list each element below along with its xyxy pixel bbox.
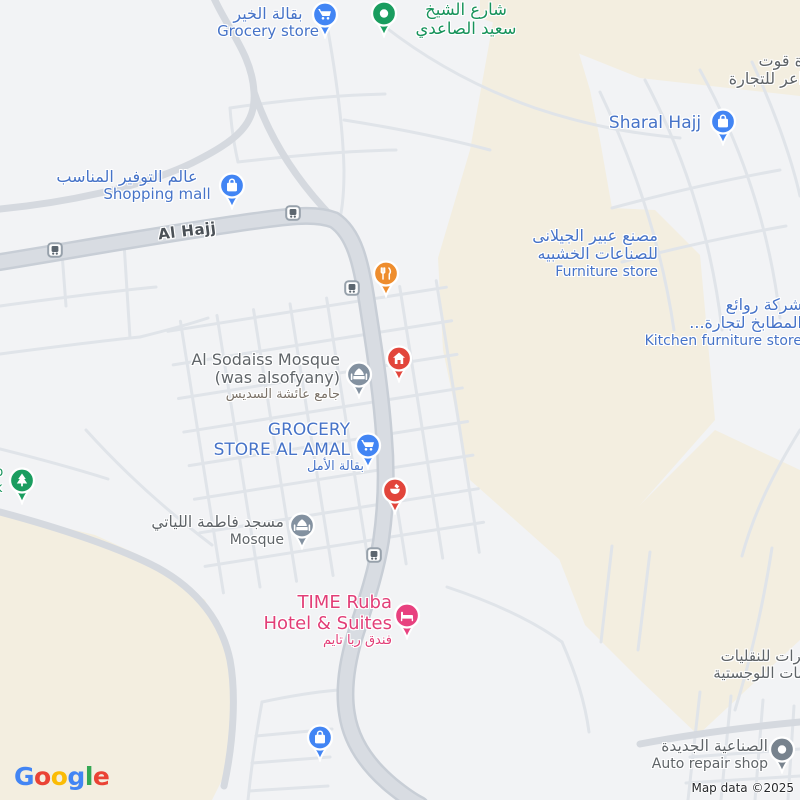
auto-repair-marker[interactable] (767, 736, 797, 774)
poi-label-park-fragment[interactable]: p k (0, 465, 3, 498)
poi-name-en2: STORE AL AMAL (210, 441, 350, 461)
poi-label-auto-repair[interactable]: الصناعية الجديدة Auto repair shop (608, 738, 768, 772)
poi-name-en: Auto repair shop (608, 756, 768, 772)
poi-name-en2: Hotel & Suites (252, 614, 392, 635)
poi-name-fragment: اعر للتجارة (729, 70, 800, 88)
map-viewport[interactable]: بقالة الخير Grocery store شارع الشيخ سعي… (0, 0, 800, 800)
poi-name-en: Sharal Hajj (596, 114, 714, 134)
hotel-marker[interactable] (392, 602, 422, 640)
poi-label-fatima-mosque[interactable]: مسجد فاطمة اللياتي Mosque (124, 514, 284, 548)
poi-name-en2: (was alsofyany) (180, 369, 340, 387)
label-fragment: p (0, 465, 3, 481)
poi-name-en: Furniture store (500, 264, 658, 280)
street-label-sheikh-saeed[interactable]: شارع الشيخ سعيد الصاعدي (398, 1, 534, 39)
bus-stop-icon[interactable] (366, 547, 382, 563)
home-marker[interactable] (384, 345, 414, 383)
bus-stop-icon[interactable] (47, 242, 63, 258)
restaurant-marker[interactable] (371, 260, 401, 298)
poi-name-en: Mosque (124, 532, 284, 548)
logo-letter: G (14, 762, 34, 791)
poi-name-fragment: مات اللوجستية (713, 665, 800, 682)
poi-name-en: Shopping mall (36, 186, 218, 203)
shopping-bag-marker[interactable] (217, 172, 247, 210)
poi-label-grocery-amal[interactable]: GROCERY STORE AL AMAL بقالة الأمل (210, 421, 350, 475)
poi-name-ar: جامع عائشة السديس (180, 388, 340, 403)
poi-label-shopping-mall[interactable]: عالم التوفير المناسب Shopping mall (36, 168, 218, 204)
poi-label-sharal-hajj[interactable]: Sharal Hajj (596, 114, 714, 134)
mosque-marker[interactable] (287, 512, 317, 550)
poi-name-en1: Al Sodaiss Mosque (180, 351, 340, 369)
poi-name-ar2: للصناعات الخشبيه (500, 245, 658, 263)
poi-label-qut-trading[interactable]: ة قوت اعر للتجارة (729, 52, 800, 89)
poi-label-transport-co[interactable]: يرات للنقليات مات اللوجستية (713, 648, 800, 683)
street-name-line1: شارع الشيخ (398, 1, 534, 20)
poi-name-ar: مسجد فاطمة اللياتي (124, 514, 284, 532)
logo-letter: o (34, 762, 51, 791)
logo-letter: g (67, 762, 84, 791)
mosque-marker[interactable] (344, 361, 374, 399)
pharmacy-marker[interactable] (380, 477, 410, 515)
poi-name-ar1: مصنع عبير الجيلانى (500, 227, 658, 245)
park-tree-marker[interactable] (7, 467, 37, 505)
bus-stop-icon[interactable] (285, 205, 301, 221)
map-attribution: Map data ©2025 (691, 781, 794, 795)
poi-label-furniture-store[interactable]: مصنع عبير الجيلانى للصناعات الخشبيه Furn… (500, 227, 658, 280)
poi-name-ar: بقالة الأمل (210, 460, 364, 475)
poi-label-hotel[interactable]: TIME Ruba Hotel & Suites فندق ربا تايم (252, 593, 392, 649)
logo-letter: l (85, 762, 93, 791)
poi-name-ar: الصناعية الجديدة (608, 738, 768, 756)
poi-label-kitchen-store[interactable]: شركة روائع المطابخ لتجارة... Kitchen fur… (645, 296, 800, 349)
google-logo[interactable]: Google (14, 762, 109, 791)
poi-name-fragment: يرات للنقليات (713, 648, 800, 665)
poi-label-grocery-khair[interactable]: بقالة الخير Grocery store (190, 5, 346, 41)
poi-name-en: Grocery store (190, 23, 346, 40)
street-point-marker[interactable] (369, 0, 399, 38)
poi-name-ar2: المطابخ لتجارة... (645, 314, 800, 332)
logo-letter: o (51, 762, 68, 791)
poi-name-en: Kitchen furniture store (645, 333, 800, 349)
poi-name-ar: عالم التوفير المناسب (36, 168, 218, 186)
label-fragment: k (0, 481, 3, 497)
shopping-bag-marker[interactable] (305, 724, 335, 762)
street-name-line2: سعيد الصاعدي (398, 20, 534, 39)
poi-name-ar: فندق ربا تايم (252, 634, 392, 649)
poi-name-ar: بقالة الخير (190, 5, 346, 23)
logo-letter: e (93, 762, 109, 791)
poi-name-en1: GROCERY (210, 421, 350, 441)
poi-name-ar1: شركة روائع (645, 296, 800, 314)
poi-label-sodaiss-mosque[interactable]: Al Sodaiss Mosque (was alsofyany) جامع ع… (180, 351, 340, 403)
bus-stop-icon[interactable] (344, 280, 360, 296)
poi-name-fragment: ة قوت (729, 52, 800, 70)
poi-name-en1: TIME Ruba (252, 593, 392, 614)
